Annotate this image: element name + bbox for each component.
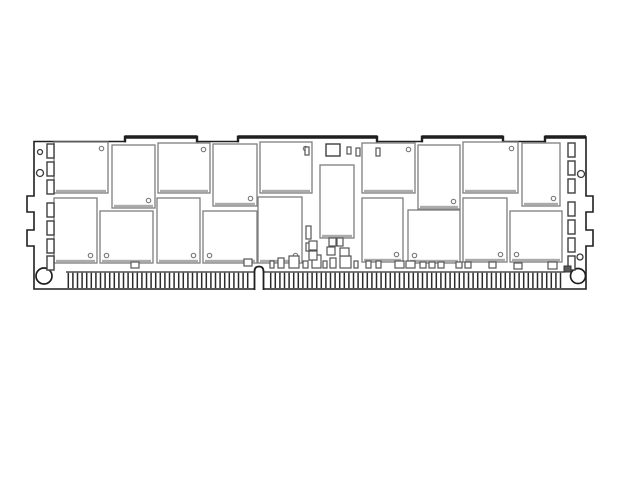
passive-component	[47, 162, 54, 176]
memory-chip	[258, 197, 302, 263]
memory-chip	[213, 144, 257, 206]
chip-pin1-dot	[498, 252, 502, 256]
chip-pin1-dot	[207, 253, 211, 257]
alignment-hole	[577, 254, 583, 260]
memory-chip	[510, 211, 562, 262]
memory-chip-shadow	[114, 205, 153, 208]
passive-component	[514, 263, 522, 269]
chip-pin1-dot	[394, 252, 398, 256]
passive-component	[568, 202, 575, 216]
passive-component	[340, 256, 351, 268]
chip-pin1-dot	[451, 199, 455, 203]
passive-component	[47, 180, 54, 194]
memory-chip-shadow	[524, 203, 558, 206]
chip-pin1-dot	[99, 146, 103, 150]
memory-chip	[418, 145, 460, 209]
chip-pin1-dot	[88, 253, 92, 257]
chip-pin1-dot	[248, 196, 252, 200]
memory-chip	[463, 142, 518, 193]
chip-pin1-dot	[509, 146, 513, 150]
register-chip-shadow	[322, 235, 352, 238]
memory-chip-shadow	[159, 260, 198, 263]
passive-component	[309, 251, 317, 260]
passive-component	[568, 238, 575, 252]
memory-chip-shadow	[56, 190, 106, 193]
register-chip-body	[320, 165, 354, 238]
memory-chip-shadow	[420, 206, 458, 209]
memory-chip	[100, 211, 153, 263]
passive-component	[327, 247, 335, 255]
memory-chip	[112, 145, 155, 208]
memory-chip-shadow	[215, 203, 255, 206]
passive-component	[329, 238, 336, 246]
passive-component	[568, 143, 575, 157]
passive-component	[323, 261, 327, 268]
passive-component	[347, 147, 351, 154]
dimm-line-art	[0, 0, 640, 480]
memory-chip	[158, 143, 210, 193]
memory-chip	[260, 142, 312, 193]
passive-component	[465, 262, 471, 268]
passive-component	[337, 238, 343, 246]
passive-component	[306, 226, 311, 239]
memory-chip	[362, 143, 415, 193]
passive-component	[305, 147, 309, 155]
memory-chip	[522, 143, 560, 206]
memory-chip	[54, 142, 108, 193]
passive-component	[568, 179, 575, 193]
memory-chip	[54, 198, 97, 263]
chip-pin1-dot	[412, 253, 416, 257]
chip-pin1-dot	[146, 198, 150, 202]
mounting-hole	[571, 269, 586, 284]
passive-component	[340, 248, 349, 256]
passive-component	[309, 241, 317, 250]
passive-component	[568, 220, 575, 234]
memory-chip-shadow	[465, 190, 516, 193]
passive-component	[47, 239, 54, 253]
passive-component	[47, 221, 54, 235]
memory-chip-shadow	[364, 190, 413, 193]
chip-pin1-dot	[406, 147, 410, 151]
passive-component	[548, 262, 557, 269]
alignment-hole	[37, 170, 44, 177]
passive-component	[278, 258, 284, 268]
memory-chip	[362, 198, 403, 262]
chip-pin1-dot	[191, 253, 195, 257]
passive-component	[568, 161, 575, 175]
spd-eeprom	[326, 144, 340, 156]
memory-chip-shadow	[262, 190, 310, 193]
memory-chip	[157, 198, 200, 263]
memory-chip-shadow	[102, 260, 151, 263]
passive-component	[429, 262, 435, 268]
register-chip	[320, 165, 354, 238]
passive-component	[289, 256, 299, 268]
alignment-hole	[578, 171, 585, 178]
passive-component	[376, 148, 380, 156]
passive-component	[356, 148, 360, 156]
passive-component	[303, 261, 308, 268]
chip-pin1-dot	[551, 196, 555, 200]
passive-component	[420, 262, 426, 268]
passive-component	[270, 261, 274, 268]
memory-chip-shadow	[512, 259, 560, 262]
passive-component	[131, 262, 139, 268]
passive-component	[47, 144, 54, 158]
chip-pin1-dot	[201, 147, 205, 151]
memory-chip	[408, 210, 460, 263]
passive-component	[395, 261, 404, 268]
dark-component	[564, 266, 571, 272]
passive-component	[456, 262, 462, 268]
memory-chip	[463, 198, 507, 262]
memory-module-illustration	[0, 0, 640, 480]
chip-pin1-dot	[514, 252, 518, 256]
passive-component	[47, 256, 54, 270]
passive-component	[244, 259, 252, 266]
memory-chip-shadow	[56, 260, 95, 263]
memory-chip	[203, 211, 257, 263]
passive-component	[330, 258, 336, 268]
memory-chip-shadow	[465, 259, 505, 262]
passive-component	[376, 261, 381, 268]
passive-component	[47, 203, 54, 217]
key-notch	[255, 267, 264, 291]
passive-component	[438, 262, 444, 268]
passive-component	[354, 261, 358, 268]
passive-component	[406, 261, 415, 268]
passive-component	[366, 261, 371, 268]
passive-component	[489, 262, 496, 268]
memory-chip-shadow	[160, 190, 208, 193]
alignment-hole	[38, 150, 43, 155]
chip-pin1-dot	[104, 253, 108, 257]
